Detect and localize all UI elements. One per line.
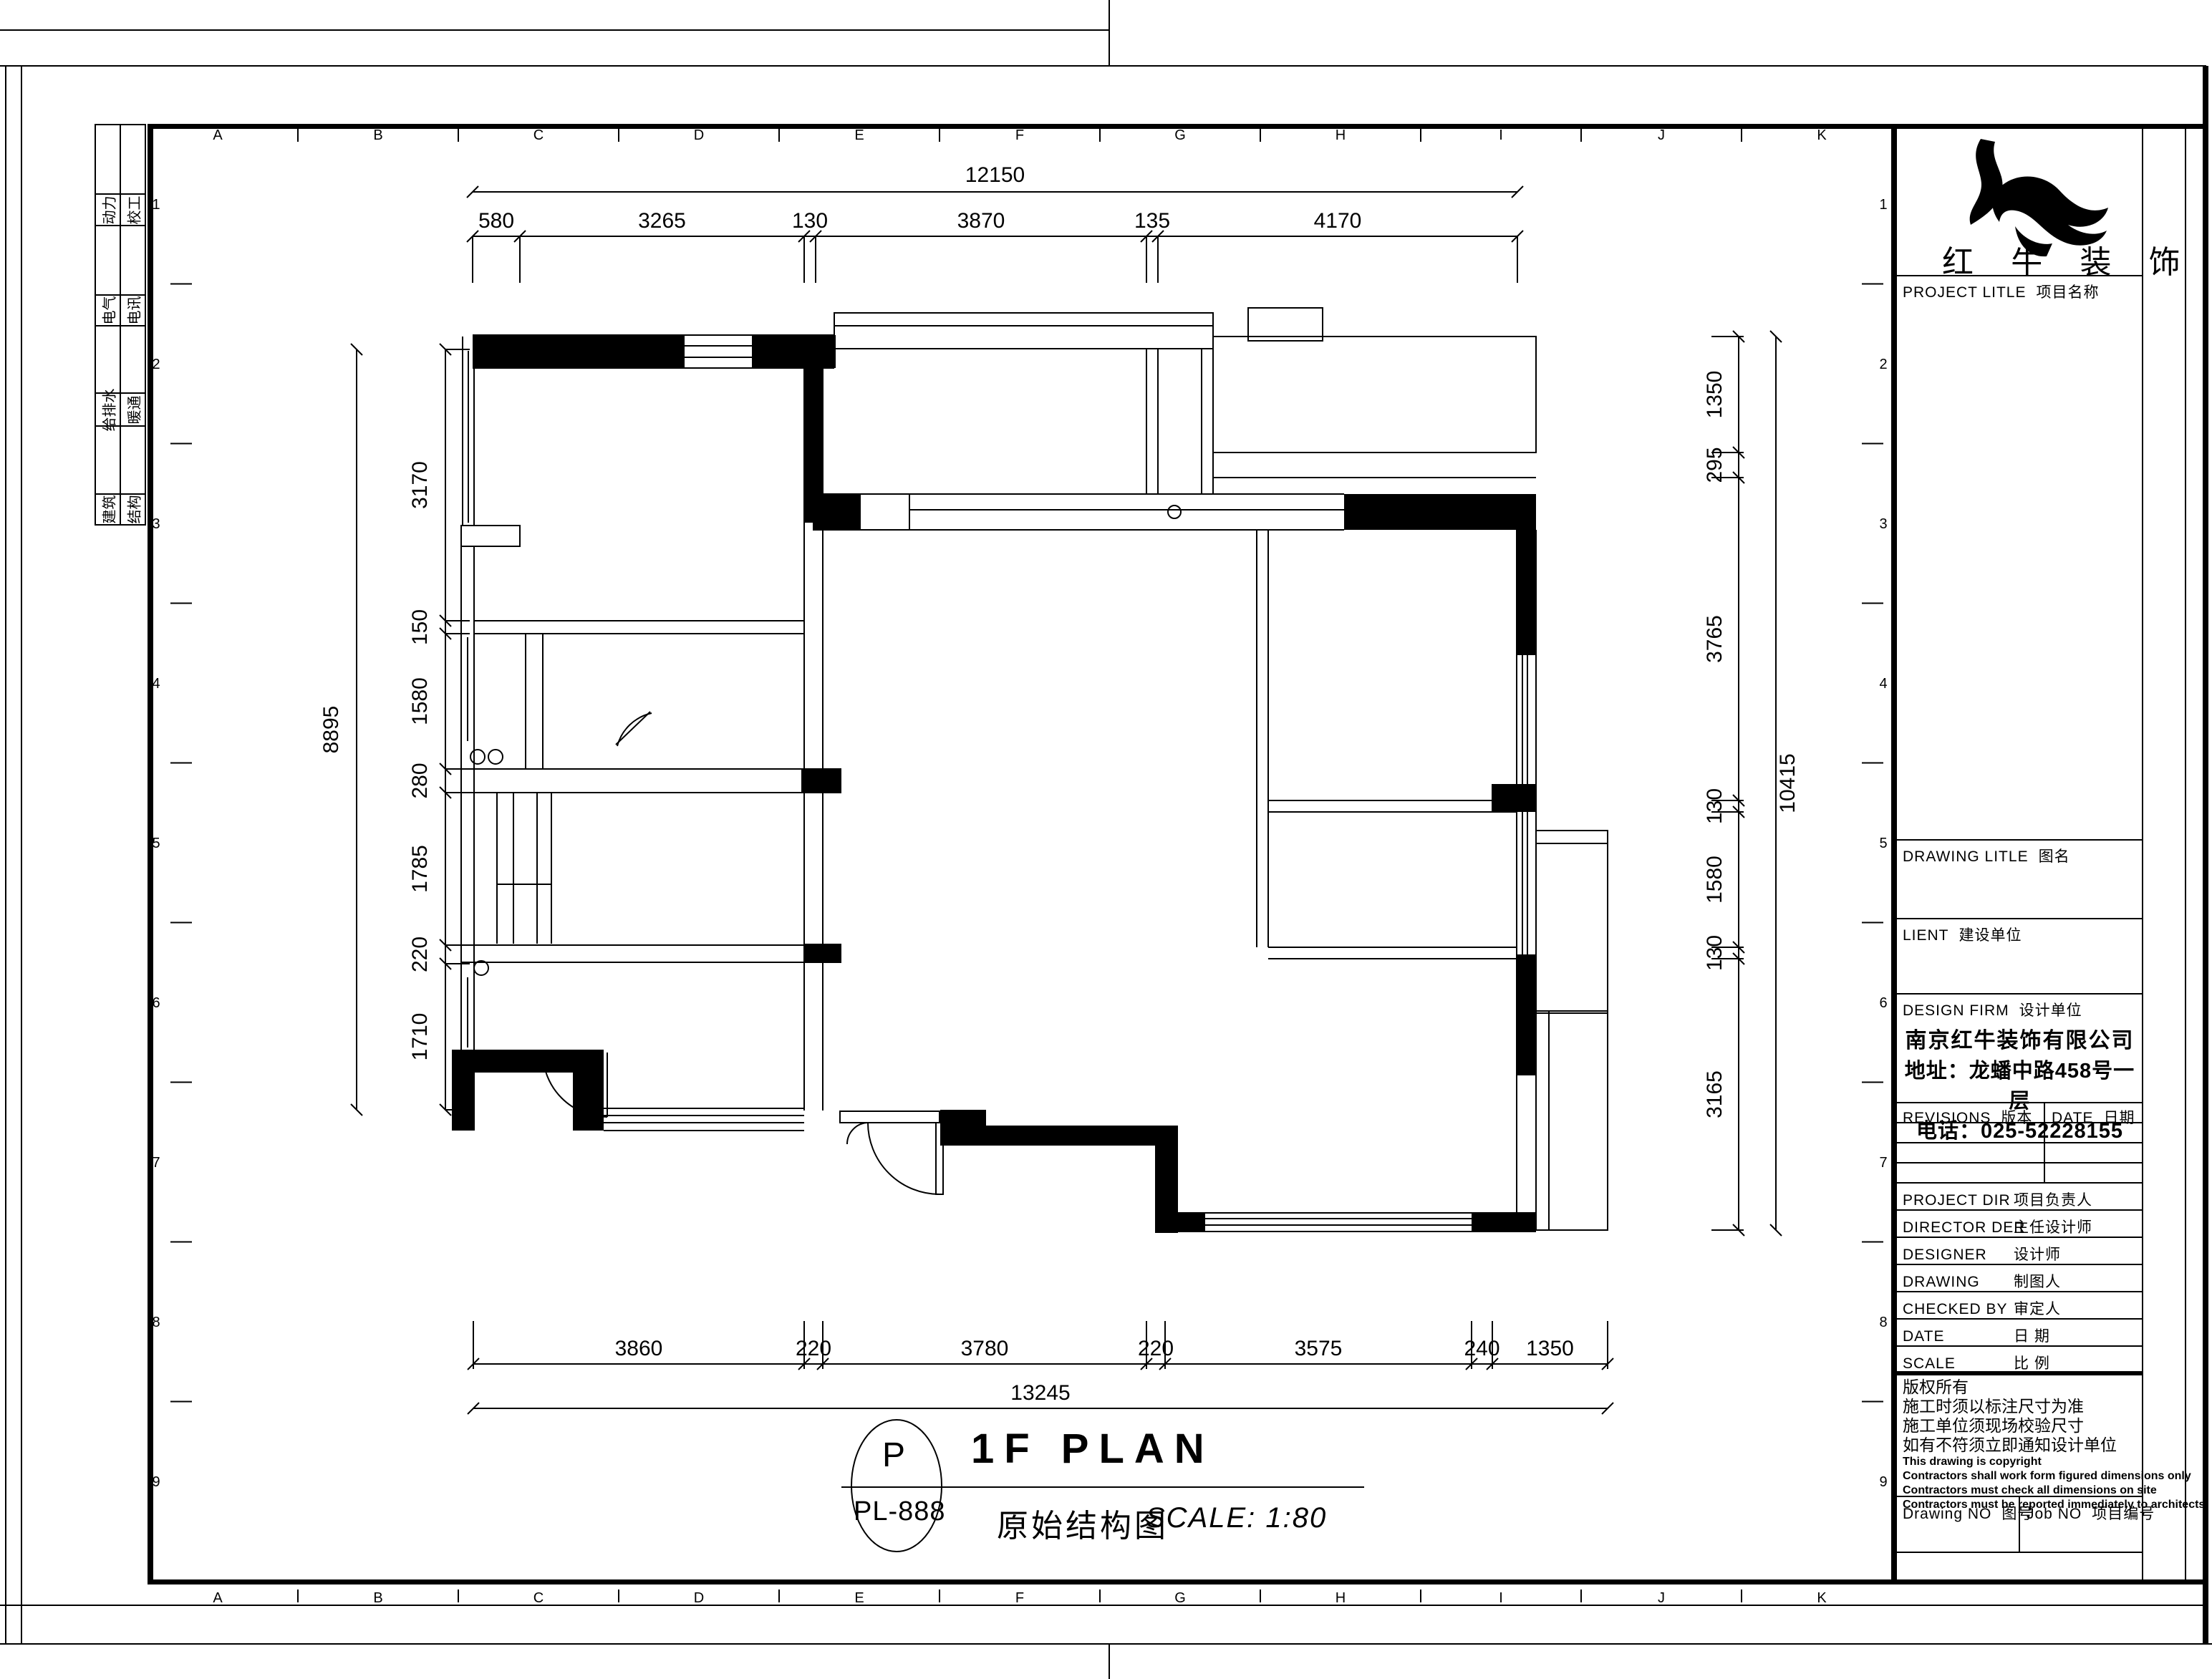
grid-column-letter: C xyxy=(533,1590,544,1606)
dim-label: 1580 xyxy=(1703,856,1726,904)
tb-row-en: DATE xyxy=(1903,1328,2014,1345)
dim-label: 1580 xyxy=(408,677,432,725)
tb-row-date: DATE日 期 xyxy=(1903,1325,2139,1346)
grid-row-number: 7 xyxy=(152,1155,160,1171)
tb-job-no-label: Job NO项目编号 xyxy=(2027,1502,2155,1524)
tb-client-cn: 建设单位 xyxy=(1959,927,2022,944)
discipline-label: 校工 xyxy=(122,195,143,224)
grid-column-letter: G xyxy=(1174,127,1186,143)
tb-row-en: SCALE xyxy=(1903,1355,2014,1373)
brand-logo-text: 红 牛 装 饰 xyxy=(1942,236,2195,282)
discipline-cell: 电气 xyxy=(95,295,120,326)
dim-label: 280 xyxy=(408,763,432,798)
dim-overall-label: 12150 xyxy=(965,163,1025,187)
sheet-circle-letter: P xyxy=(882,1436,905,1475)
grid-column-letter: G xyxy=(1174,1590,1186,1606)
tb-drawing-title-en: DRAWING LITLE xyxy=(1903,848,2029,865)
tb-row-cn: 制图人 xyxy=(2014,1274,2061,1290)
grid-row-number: 5 xyxy=(152,836,160,851)
dim-label: 1710 xyxy=(408,1013,432,1061)
floor-plan-walls-thin xyxy=(461,308,1608,1232)
discipline-cell: 电讯 xyxy=(120,295,145,326)
dim-label: 220 xyxy=(796,1337,831,1360)
dim-label: 150 xyxy=(408,609,432,645)
note-line-en: Contractors shall work form figured dime… xyxy=(1903,1469,2191,1484)
discipline-cell: 动力 xyxy=(95,194,120,226)
dim-label: 220 xyxy=(408,937,432,972)
grid-column-letter: B xyxy=(373,127,382,143)
discipline-cell: 结构 xyxy=(120,494,145,525)
grid-row-number: 8 xyxy=(1879,1315,1887,1330)
grid-row-number: 4 xyxy=(152,676,160,692)
tb-row-en: DESIGNER xyxy=(1903,1247,2014,1264)
plan-scale-note: SCALE: 1:80 xyxy=(1146,1502,1327,1534)
drawing-sheet: 5803265130387013541701215038602203780220… xyxy=(0,0,2212,1679)
dim-overall-label: 8895 xyxy=(319,706,343,754)
grid-row-number: 4 xyxy=(1879,676,1887,692)
discipline-cell: 校工 xyxy=(120,194,145,226)
dim-label: 1350 xyxy=(1703,371,1726,419)
tb-row-director-der: DIRECTOR DER主任设计师 xyxy=(1903,1216,2139,1237)
tb-project-title-cn: 项目名称 xyxy=(2037,284,2100,301)
tb-row-en: DIRECTOR DER xyxy=(1903,1219,2014,1237)
dim-label: 3870 xyxy=(957,209,1005,233)
dim-label: 135 xyxy=(1134,209,1170,233)
grid-column-letter: H xyxy=(1336,1590,1346,1606)
drawing-frame xyxy=(148,66,2208,1644)
grid-row-number: 1 xyxy=(1879,197,1887,213)
plan-subtitle: 原始结构图 xyxy=(997,1500,1169,1546)
discipline-label: 电讯 xyxy=(122,296,143,325)
tb-row-cn: 项目负责人 xyxy=(2014,1192,2092,1209)
tb-drawing-no-en: Drawing NO xyxy=(1903,1506,1991,1522)
grid-row-number: 6 xyxy=(1879,995,1887,1011)
plan-title: 1F PLAN xyxy=(971,1425,1214,1473)
discipline-label: 暖通 xyxy=(122,395,143,424)
dim-label: 240 xyxy=(1464,1337,1499,1360)
grid-row-number: 3 xyxy=(152,516,160,532)
tb-drawing-no-label: Drawing NO图号 xyxy=(1903,1502,2033,1524)
company-address: 地址：龙蟠中路458号一层 xyxy=(1897,1054,2143,1114)
tb-drawing-title-label: DRAWING LITLE图名 xyxy=(1903,845,2070,866)
note-line-en: This drawing is copyright xyxy=(1903,1455,2042,1469)
tb-revisions-cn: 版本 xyxy=(2001,1110,2032,1126)
dim-label: 3765 xyxy=(1703,615,1726,663)
dim-overall-label: 13245 xyxy=(1010,1381,1070,1405)
tb-project-title-label: PROJECT LITLE项目名称 xyxy=(1903,281,2100,302)
dim-label: 3165 xyxy=(1703,1070,1726,1118)
tb-client-label: LIENT建设单位 xyxy=(1903,924,2022,945)
tb-row-cn: 比 例 xyxy=(2014,1355,2050,1372)
dim-label: 3265 xyxy=(638,209,686,233)
grid-column-letter: K xyxy=(1817,127,1827,143)
plumbing-riser-circles xyxy=(470,505,1535,1121)
note-line-cn: 施工时须以标注尺寸为准 xyxy=(1903,1397,2084,1416)
dim-label: 3860 xyxy=(615,1337,663,1360)
tb-row-designer: DESIGNER设计师 xyxy=(1903,1243,2139,1264)
note-line-cn: 版权所有 xyxy=(1903,1378,1969,1397)
tb-job-no-cn: 项目编号 xyxy=(2092,1506,2155,1522)
note-line-cn: 如有不符须立即通知设计单位 xyxy=(1903,1436,2117,1455)
dim-label: 130 xyxy=(1703,788,1726,824)
tb-revisions-header: REVISIONS版本 xyxy=(1903,1106,2032,1128)
company-name: 南京红牛装饰有限公司 xyxy=(1897,1022,2143,1054)
dim-label: 3780 xyxy=(961,1337,1009,1360)
grid-column-letter: H xyxy=(1336,127,1346,143)
grid-row-number: 5 xyxy=(1879,836,1887,851)
grid-row-number: 9 xyxy=(152,1474,160,1490)
tb-date-cn: 日期 xyxy=(2103,1110,2135,1126)
tb-row-cn: 日 期 xyxy=(2014,1328,2050,1345)
tb-revisions-en: REVISIONS xyxy=(1903,1110,1991,1126)
grid-row-number: 2 xyxy=(152,357,160,372)
grid-row-number: 2 xyxy=(1879,357,1887,372)
grid-column-letter: E xyxy=(854,1590,864,1606)
dim-label: 3170 xyxy=(408,461,432,509)
tb-row-en: CHECKED BY xyxy=(1903,1301,2014,1318)
tb-row-en: PROJECT DIR xyxy=(1903,1192,2014,1209)
discipline-cell: 给排水 xyxy=(95,393,120,426)
tb-row-cn: 设计师 xyxy=(2014,1247,2061,1263)
floor-plan-walls-black xyxy=(452,335,1536,1233)
tb-row-cn: 主任设计师 xyxy=(2014,1219,2092,1236)
tb-design-firm-label: DESIGN FIRM设计单位 xyxy=(1903,999,2082,1020)
discipline-label: 动力 xyxy=(97,195,118,224)
tb-client-en: LIENT xyxy=(1903,927,1949,944)
tb-row-en: DRAWING xyxy=(1903,1274,2014,1291)
discipline-label: 给排水 xyxy=(97,388,118,431)
tb-job-no-en: Job NO xyxy=(2027,1506,2082,1522)
tb-date-header: DATE日期 xyxy=(2052,1106,2135,1128)
grid-column-letter: B xyxy=(373,1590,382,1606)
discipline-label: 结构 xyxy=(122,495,143,524)
tb-row-checked-by: CHECKED BY审定人 xyxy=(1903,1297,2139,1319)
tb-date-en: DATE xyxy=(2052,1110,2093,1126)
discipline-label: 建筑 xyxy=(97,495,118,524)
dim-label: 1350 xyxy=(1526,1337,1574,1360)
tb-design-firm-cn: 设计单位 xyxy=(2019,1002,2082,1019)
note-line-cn: 施工单位须现场校验尺寸 xyxy=(1903,1416,2084,1436)
tb-design-firm-en: DESIGN FIRM xyxy=(1903,1002,2009,1019)
dim-label: 130 xyxy=(1703,935,1726,971)
grid-column-letter: A xyxy=(213,127,223,143)
grid-column-letter: D xyxy=(694,1590,704,1606)
sheet-circle-code: PL-888 xyxy=(854,1496,946,1527)
grid-column-letter: C xyxy=(533,127,544,143)
dim-label: 580 xyxy=(478,209,514,233)
grid-row-number: 1 xyxy=(152,197,160,213)
grid-column-letter: F xyxy=(1015,127,1024,143)
tb-drawing-title-cn: 图名 xyxy=(2039,848,2070,865)
discipline-label: 电气 xyxy=(97,296,118,325)
grid-row-number: 6 xyxy=(152,995,160,1011)
tb-row-scale: SCALE比 例 xyxy=(1903,1352,2139,1373)
grid-column-letter: E xyxy=(854,127,864,143)
grid-row-number: 8 xyxy=(152,1315,160,1330)
dim-label: 1785 xyxy=(408,845,432,893)
dim-label: 130 xyxy=(792,209,828,233)
tb-project-title-en: PROJECT LITLE xyxy=(1903,284,2027,301)
grid-column-letter: I xyxy=(1499,127,1503,143)
grid-column-letter: J xyxy=(1658,127,1665,143)
grid-column-letter: J xyxy=(1658,1590,1665,1606)
grid-column-letter: I xyxy=(1499,1590,1503,1606)
grid-column-letter: K xyxy=(1817,1590,1827,1606)
discipline-cell: 暖通 xyxy=(120,393,145,426)
grid-row-number: 9 xyxy=(1879,1474,1887,1490)
discipline-cell: 建筑 xyxy=(95,494,120,525)
tb-row-project-dir: PROJECT DIR项目负责人 xyxy=(1903,1189,2139,1210)
dim-label: 220 xyxy=(1138,1337,1174,1360)
grid-column-letter: D xyxy=(694,127,704,143)
grid-column-letter: F xyxy=(1015,1590,1024,1606)
grid-row-number: 3 xyxy=(1879,516,1887,532)
grid-column-letter: A xyxy=(213,1590,223,1606)
tb-row-cn: 审定人 xyxy=(2014,1301,2061,1317)
dim-overall-label: 10415 xyxy=(1776,753,1800,813)
dim-label: 4170 xyxy=(1314,209,1362,233)
dim-label: 295 xyxy=(1703,447,1726,483)
note-line-en: Contractors must check all dimensions on… xyxy=(1903,1484,2157,1498)
grid-row-number: 7 xyxy=(1879,1155,1887,1171)
tb-row-drawing: DRAWING制图人 xyxy=(1903,1270,2139,1292)
dim-label: 3575 xyxy=(1295,1337,1343,1360)
